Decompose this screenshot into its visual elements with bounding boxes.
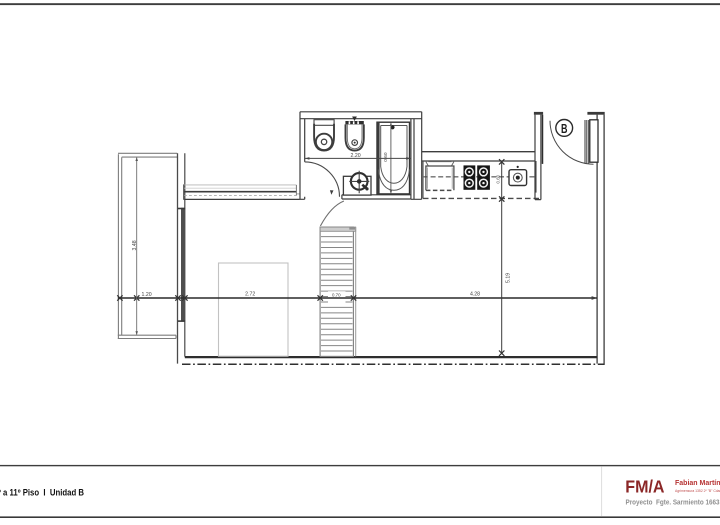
svg-text:FM/A: FM/A	[625, 476, 664, 496]
svg-text:1.20: 1.20	[142, 292, 152, 298]
svg-text:0.60: 0.60	[496, 174, 501, 183]
svg-text:5.19: 5.19	[505, 273, 511, 283]
svg-text:4.28: 4.28	[470, 292, 480, 298]
svg-text:Fabian Martínez: Fabian Martínez	[675, 480, 720, 487]
svg-text:Proyecto Fgte. Sarmiento 1663: Proyecto Fgte. Sarmiento 1663	[626, 497, 720, 506]
svg-text:0.70: 0.70	[332, 292, 341, 297]
svg-text:B: B	[561, 121, 568, 136]
svg-text:2.20: 2.20	[351, 153, 361, 159]
svg-text:º a 11º Piso I Unidad B: º a 11º Piso I Unidad B	[0, 488, 84, 498]
svg-text:0.60: 0.60	[383, 152, 389, 162]
svg-text:3.48: 3.48	[132, 240, 138, 250]
svg-text:Agrimensura 1352 2º "B" Cdad.: Agrimensura 1352 2º "B" Cdad. de Bs. As.	[675, 489, 720, 493]
svg-text:2.72: 2.72	[245, 292, 255, 298]
